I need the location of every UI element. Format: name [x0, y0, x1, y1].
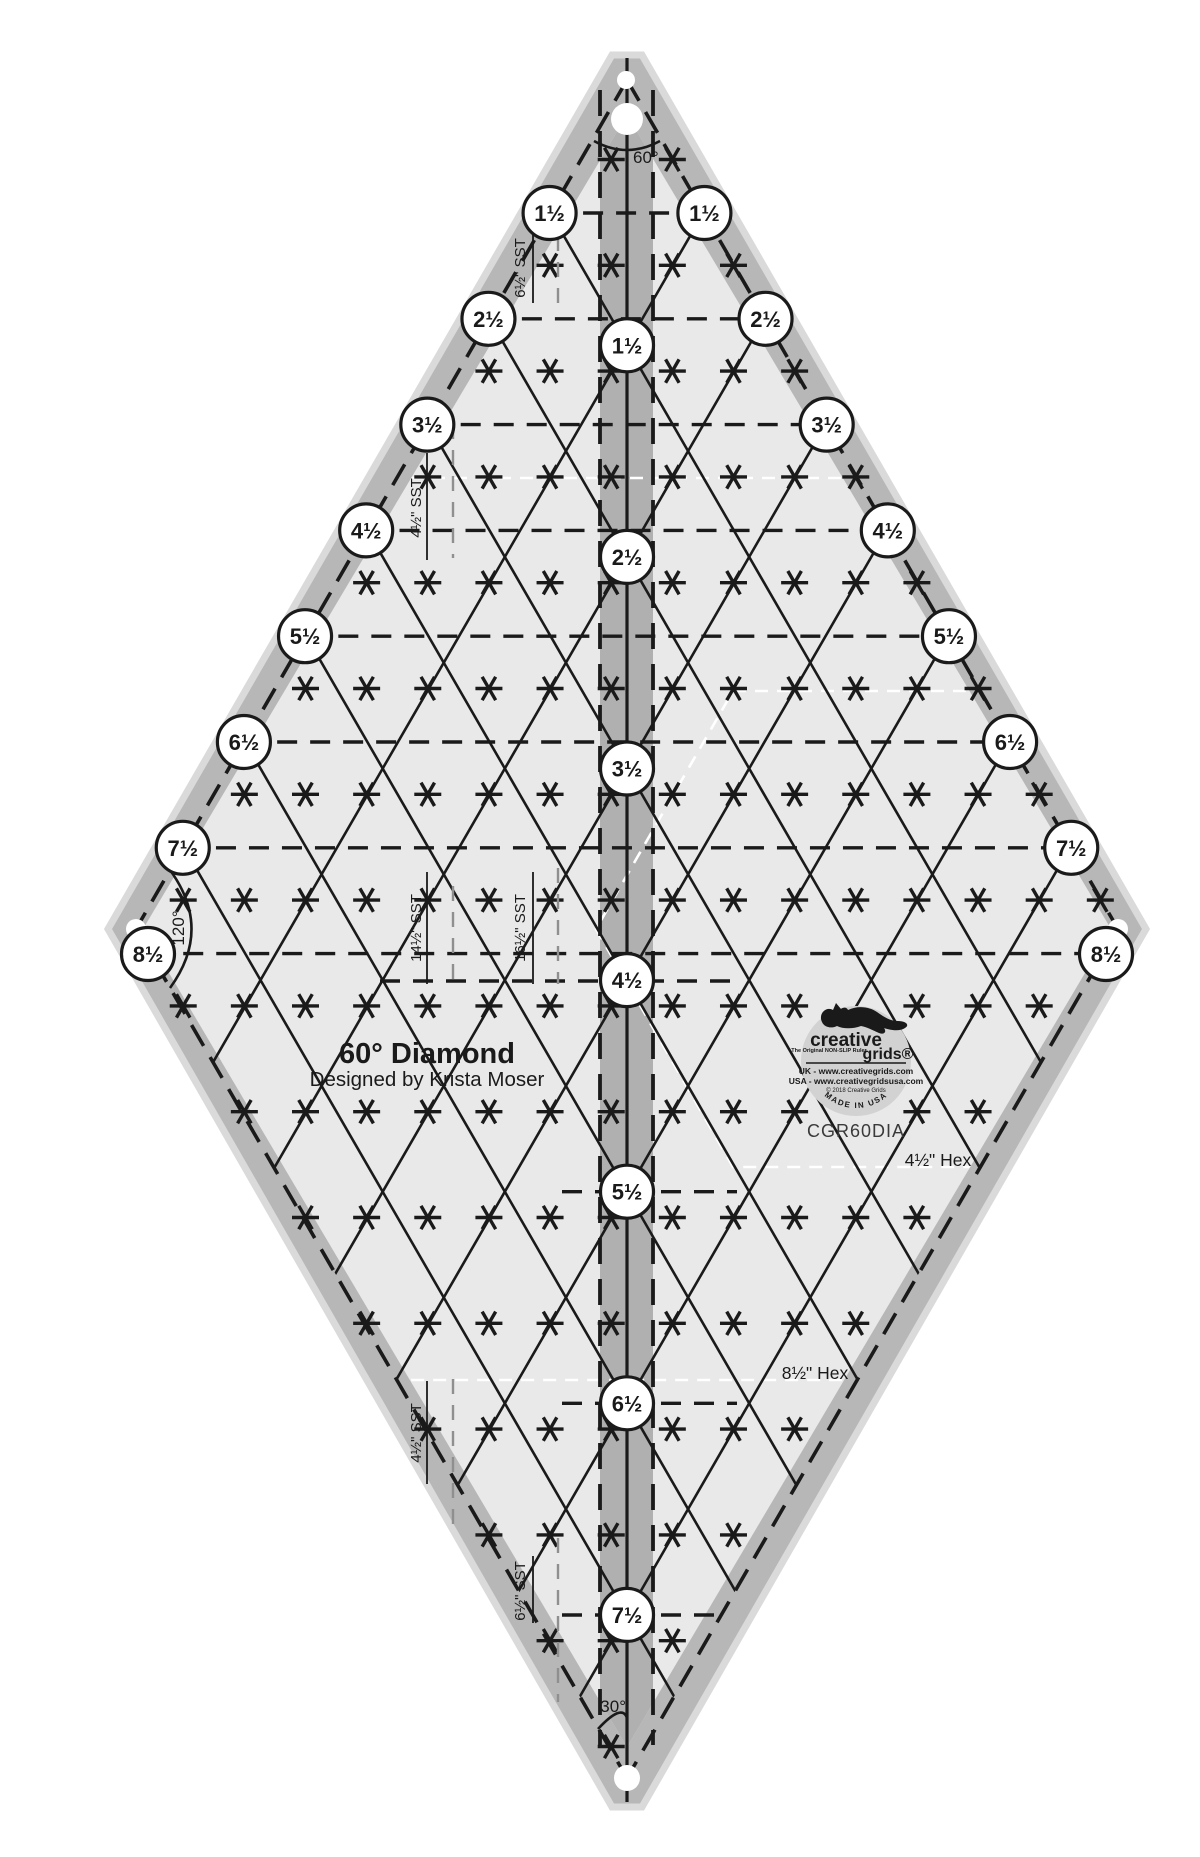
sst-label-middle-right: 16½" SST — [512, 894, 529, 962]
ruler-hole — [617, 71, 635, 89]
measure-circle-label: 5½ — [934, 624, 965, 649]
measure-circle-label: 6½ — [229, 730, 260, 755]
measure-circle-label: 8½ — [133, 942, 164, 967]
logo-tagline: The Original NON-SLIP Ruler — [791, 1048, 867, 1054]
measure-circle-label: 4½ — [873, 518, 904, 543]
ruler-product-image: 60° Diamond Designed by Krista Moser 60°… — [0, 0, 1200, 1857]
sst-label-lower-left: 4½" SST — [408, 1403, 425, 1463]
measure-circle-label: 5½ — [612, 1180, 643, 1205]
measure-circle-label: 2½ — [473, 307, 504, 332]
logo-brand-line2: grids® — [863, 1046, 914, 1063]
logo-copyright: © 2018 Creative Grids — [826, 1087, 885, 1094]
diamond-ruler-svg: 60° Diamond Designed by Krista Moser 60°… — [0, 0, 1200, 1857]
ruler-hole — [611, 103, 643, 135]
measure-circle-label: 2½ — [750, 307, 781, 332]
measure-circle-label: 1½ — [612, 333, 643, 358]
measure-circle-label: 4½ — [612, 968, 643, 993]
angle-label-30: 30° — [600, 1697, 626, 1716]
logo-usa-url: USA - www.creativegridsusa.com — [789, 1076, 924, 1086]
hex-label-large: 8½" Hex — [782, 1363, 849, 1383]
measure-circle-label: 1½ — [689, 201, 720, 226]
logo-uk-url: UK - www.creativegrids.com — [799, 1066, 914, 1076]
ruler-subtitle: Designed by Krista Moser — [310, 1068, 545, 1091]
measure-circle-label: 2½ — [612, 545, 643, 570]
measure-circle-label: 6½ — [612, 1391, 643, 1416]
sst-label-middle-left: 14½" SST — [408, 894, 425, 962]
measure-circle-label: 6½ — [995, 730, 1026, 755]
hex-label-small: 4½" Hex — [905, 1150, 972, 1170]
sst-label-upper-left: 4½" SST — [408, 478, 425, 538]
sst-label-bottom: 6½" SST — [512, 1561, 529, 1621]
sst-label-top: 6½" SST — [512, 238, 529, 298]
measure-circle-label: 3½ — [811, 413, 842, 438]
measure-circle-label: 5½ — [290, 624, 321, 649]
ruler-hole — [614, 1765, 640, 1791]
measure-circle-label: 7½ — [1056, 836, 1087, 861]
measure-circle-label: 7½ — [612, 1603, 643, 1628]
ruler-title: 60° Diamond — [339, 1038, 515, 1070]
angle-label-60: 60° — [633, 148, 659, 167]
measure-circle-label: 8½ — [1091, 942, 1122, 967]
measure-circle-label: 3½ — [612, 757, 643, 782]
measure-circle-label: 7½ — [167, 836, 198, 861]
product-code: CGR60DIA — [807, 1121, 905, 1141]
measure-circle-label: 1½ — [534, 201, 565, 226]
measure-circle-label: 3½ — [412, 413, 443, 438]
measure-circle-label: 4½ — [351, 518, 382, 543]
